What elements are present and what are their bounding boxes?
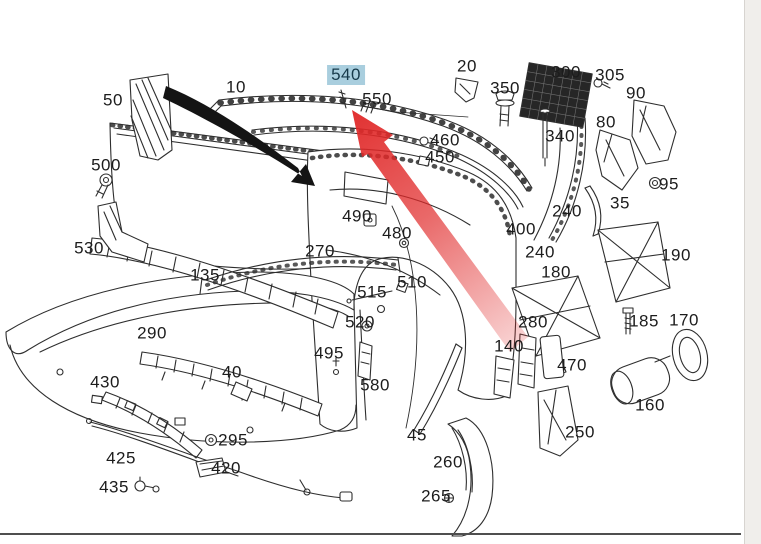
part-label-460[interactable]: 460	[430, 132, 460, 149]
part-sketch-strip-45	[414, 344, 462, 434]
part-label-340[interactable]: 340	[545, 128, 575, 145]
part-label-140[interactable]: 140	[494, 338, 524, 355]
part-label-500[interactable]: 500	[91, 157, 121, 174]
part-sketch-shell-80	[596, 130, 638, 190]
part-label-540[interactable]: 540	[327, 65, 365, 85]
part-label-550[interactable]: 550	[362, 91, 392, 108]
part-label-170[interactable]: 170	[669, 312, 699, 329]
part-label-305[interactable]: 305	[595, 67, 625, 84]
part-label-425[interactable]: 425	[106, 450, 136, 467]
part-label-480[interactable]: 480	[382, 225, 412, 242]
part-label-420[interactable]: 420	[211, 460, 241, 477]
part-label-20[interactable]: 20	[457, 58, 477, 75]
part-label-580[interactable]: 580	[360, 377, 390, 394]
part-label-35[interactable]: 35	[610, 195, 630, 212]
part-label-160[interactable]: 160	[635, 397, 665, 414]
part-sketch-clip-435	[135, 477, 159, 492]
part-label-180[interactable]: 180	[541, 264, 571, 281]
part-label-290[interactable]: 290	[137, 325, 167, 342]
part-sketch-pillar-260	[448, 418, 493, 536]
part-label-430[interactable]: 430	[90, 374, 120, 391]
part-label-270[interactable]: 270	[305, 243, 335, 260]
part-label-10[interactable]: 10	[226, 79, 246, 96]
part-sketch-bolt-500	[96, 174, 112, 198]
part-label-260[interactable]: 260	[433, 454, 463, 471]
part-label-265[interactable]: 265	[421, 488, 451, 505]
part-label-515[interactable]: 515	[357, 284, 387, 301]
part-label-450[interactable]: 450	[425, 149, 455, 166]
part-label-435[interactable]: 435	[99, 479, 129, 496]
part-label-520[interactable]: 520	[345, 314, 375, 331]
part-label-185[interactable]: 185	[629, 313, 659, 330]
part-label-470[interactable]: 470	[557, 357, 587, 374]
part-label-90[interactable]: 90	[626, 85, 646, 102]
part-label-250[interactable]: 250	[565, 424, 595, 441]
part-label-95[interactable]: 95	[659, 176, 679, 193]
part-label-350[interactable]: 350	[490, 80, 520, 97]
part-label-45[interactable]: 45	[407, 427, 427, 444]
part-label-135[interactable]: 135	[190, 267, 220, 284]
part-sketch-bracket-140	[494, 356, 514, 398]
part-sketch-ring-170	[667, 326, 713, 385]
part-label-240[interactable]: 240	[552, 203, 582, 220]
part-label-240[interactable]: 240	[525, 244, 555, 261]
part-sketch-clip-20	[455, 78, 478, 102]
part-sketch-shell-90	[632, 100, 676, 164]
part-sketch-truss-190	[598, 222, 670, 302]
part-label-300[interactable]: 300	[551, 64, 581, 81]
right-sidebar[interactable]	[744, 0, 761, 544]
part-label-80[interactable]: 80	[596, 114, 616, 131]
parts-catalog-view: 5010540550203503003059080340460450953524…	[0, 0, 761, 544]
part-sketch-grommet-295	[206, 435, 217, 446]
part-label-490[interactable]: 490	[342, 208, 372, 225]
part-sketch-strip-580	[358, 342, 372, 380]
part-label-400[interactable]: 400	[506, 221, 536, 238]
part-sketch-bracket-250	[538, 386, 578, 456]
part-label-510[interactable]: 510	[397, 274, 427, 291]
part-label-530[interactable]: 530	[74, 240, 104, 257]
part-label-50[interactable]: 50	[103, 92, 123, 109]
part-label-495[interactable]: 495	[314, 345, 344, 362]
part-sketch-crescent-35	[585, 186, 601, 236]
part-label-190[interactable]: 190	[661, 247, 691, 264]
part-sketch-lower-skin	[6, 272, 356, 442]
part-label-280[interactable]: 280	[518, 314, 548, 331]
part-label-295[interactable]: 295	[218, 432, 248, 449]
part-label-40[interactable]: 40	[222, 364, 242, 381]
